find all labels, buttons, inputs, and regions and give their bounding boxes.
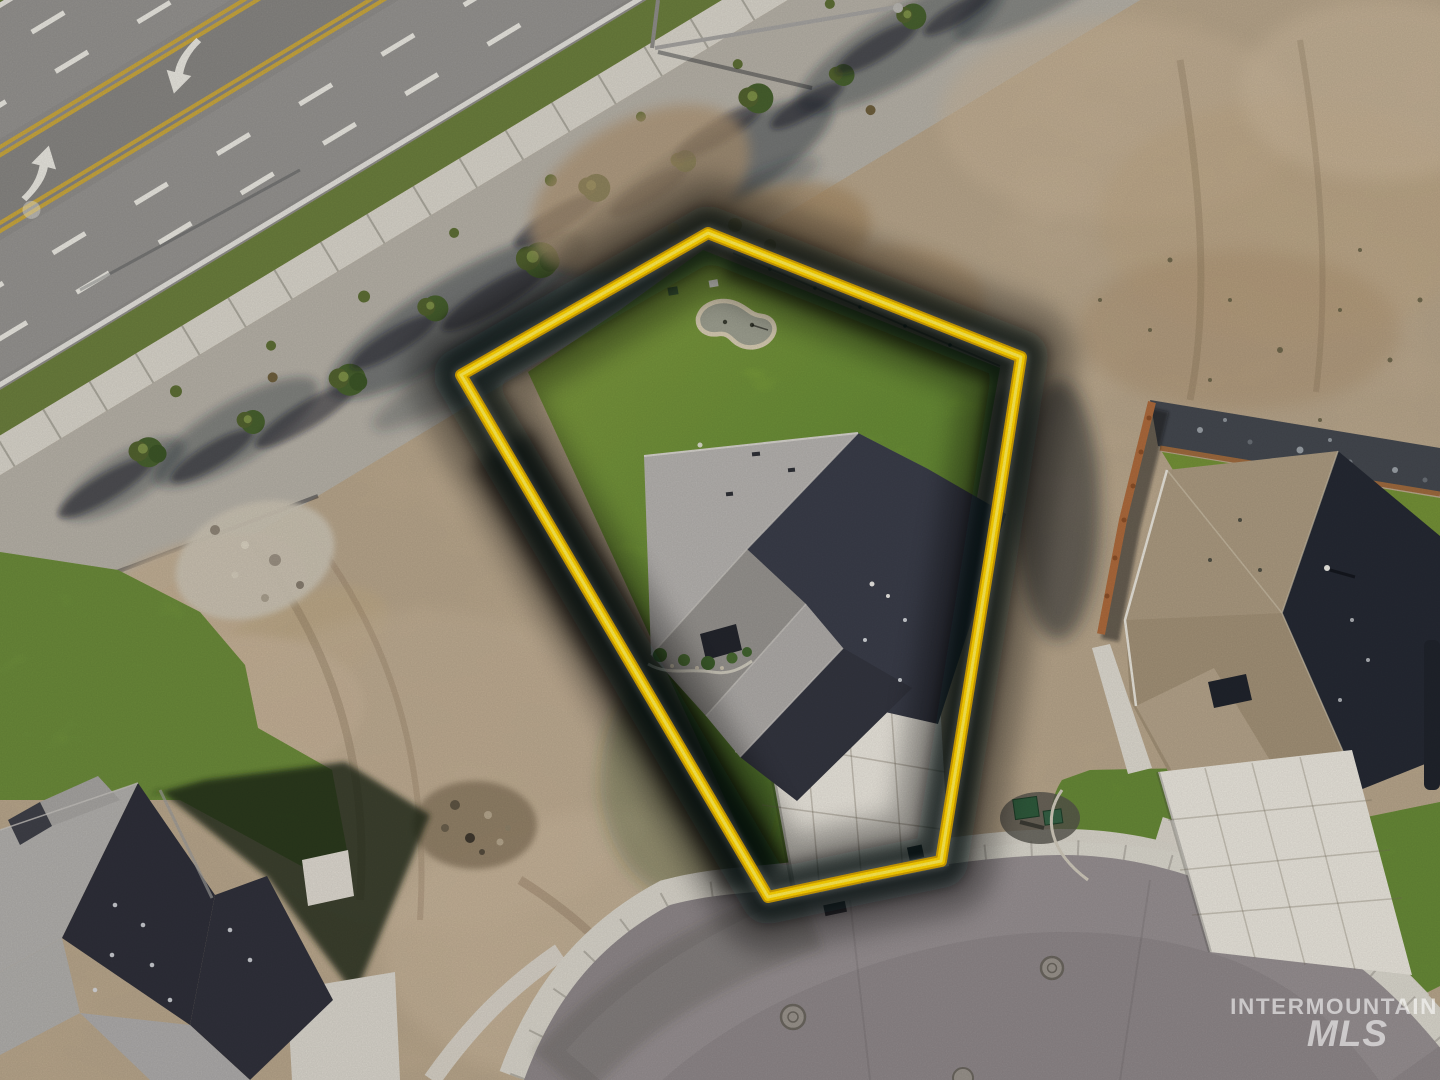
watermark-line2: MLS: [1230, 1015, 1388, 1054]
aerial-photo: INTERMOUNTAIN MLS: [0, 0, 1440, 1080]
photo-grain: [0, 0, 1440, 1080]
aerial-photo-canvas: [0, 0, 1440, 1080]
mls-watermark: INTERMOUNTAIN MLS: [1230, 995, 1438, 1054]
